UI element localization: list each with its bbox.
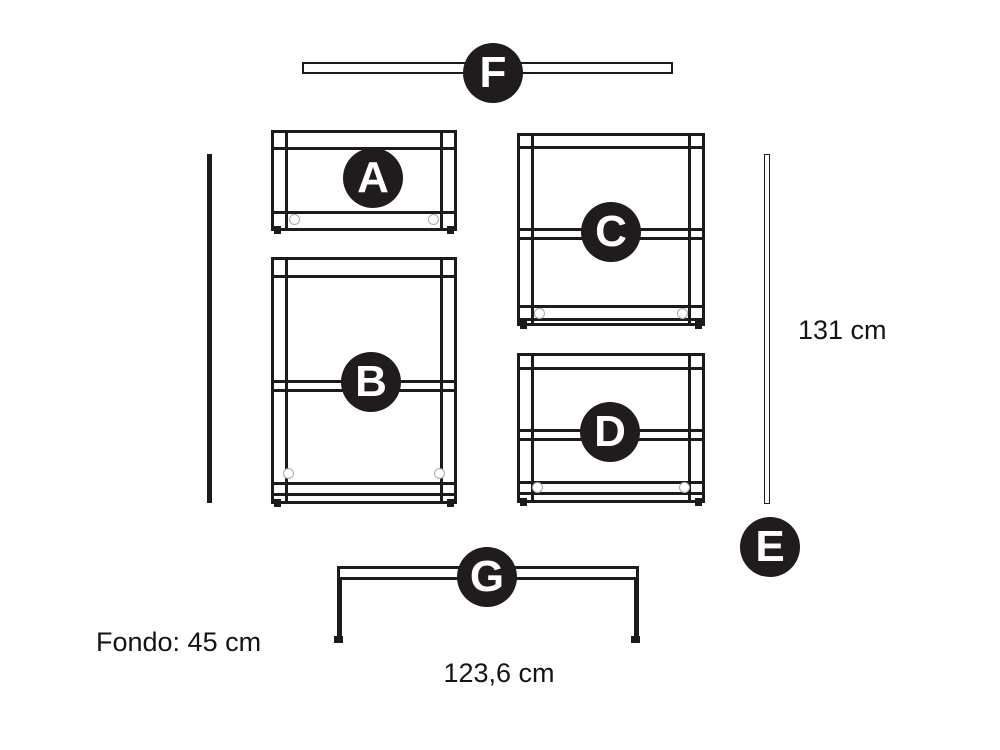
- panel-top-rail: [274, 275, 454, 278]
- part-g-foot-left: [334, 636, 343, 643]
- assembly-diagram: F E A B: [0, 0, 1000, 750]
- panel-foot-right: [695, 498, 702, 506]
- part-g-leg-right: [634, 580, 639, 638]
- cam-hole: [534, 308, 545, 319]
- side-rail-right: [764, 154, 770, 504]
- height-dimension-label: 131 cm: [798, 315, 887, 346]
- panel-foot-right: [695, 321, 702, 329]
- panel-kick-rail: [274, 493, 454, 496]
- part-f-badge: F: [463, 43, 523, 103]
- part-c-badge: C: [581, 202, 641, 262]
- cam-hole: [679, 482, 690, 493]
- panel-bottom-rail: [274, 211, 454, 214]
- panel-foot-right: [447, 226, 454, 234]
- part-e-badge: E: [740, 517, 800, 577]
- cam-hole: [532, 482, 543, 493]
- cam-hole: [677, 308, 688, 319]
- panel-bottom-rail: [520, 481, 702, 484]
- cam-hole: [428, 214, 439, 225]
- depth-dimension-label: Fondo: 45 cm: [96, 627, 261, 658]
- panel-post-left: [531, 356, 534, 500]
- panel-foot-left: [274, 226, 281, 234]
- part-d-badge: D: [580, 402, 640, 462]
- panel-top-rail: [520, 146, 702, 149]
- part-b-badge: B: [341, 352, 401, 412]
- width-dimension-label: 123,6 cm: [399, 658, 599, 689]
- cam-hole: [289, 214, 300, 225]
- side-rail-left: [207, 154, 212, 503]
- panel-kick-rail: [520, 318, 702, 321]
- part-g-badge: G: [457, 547, 517, 607]
- part-g-foot-right: [631, 636, 640, 643]
- panel-kick-rail: [520, 492, 702, 495]
- panel-bottom-rail: [274, 482, 454, 485]
- panel-foot-right: [447, 499, 454, 507]
- cam-hole: [434, 468, 445, 479]
- panel-foot-left: [520, 321, 527, 329]
- panel-post-right: [688, 356, 691, 500]
- cam-hole: [283, 468, 294, 479]
- panel-foot-left: [274, 499, 281, 507]
- part-a-badge: A: [343, 148, 403, 208]
- part-g-leg-left: [337, 580, 342, 638]
- panel-top-rail: [520, 367, 702, 370]
- panel-bottom-rail: [520, 305, 702, 308]
- panel-foot-left: [520, 498, 527, 506]
